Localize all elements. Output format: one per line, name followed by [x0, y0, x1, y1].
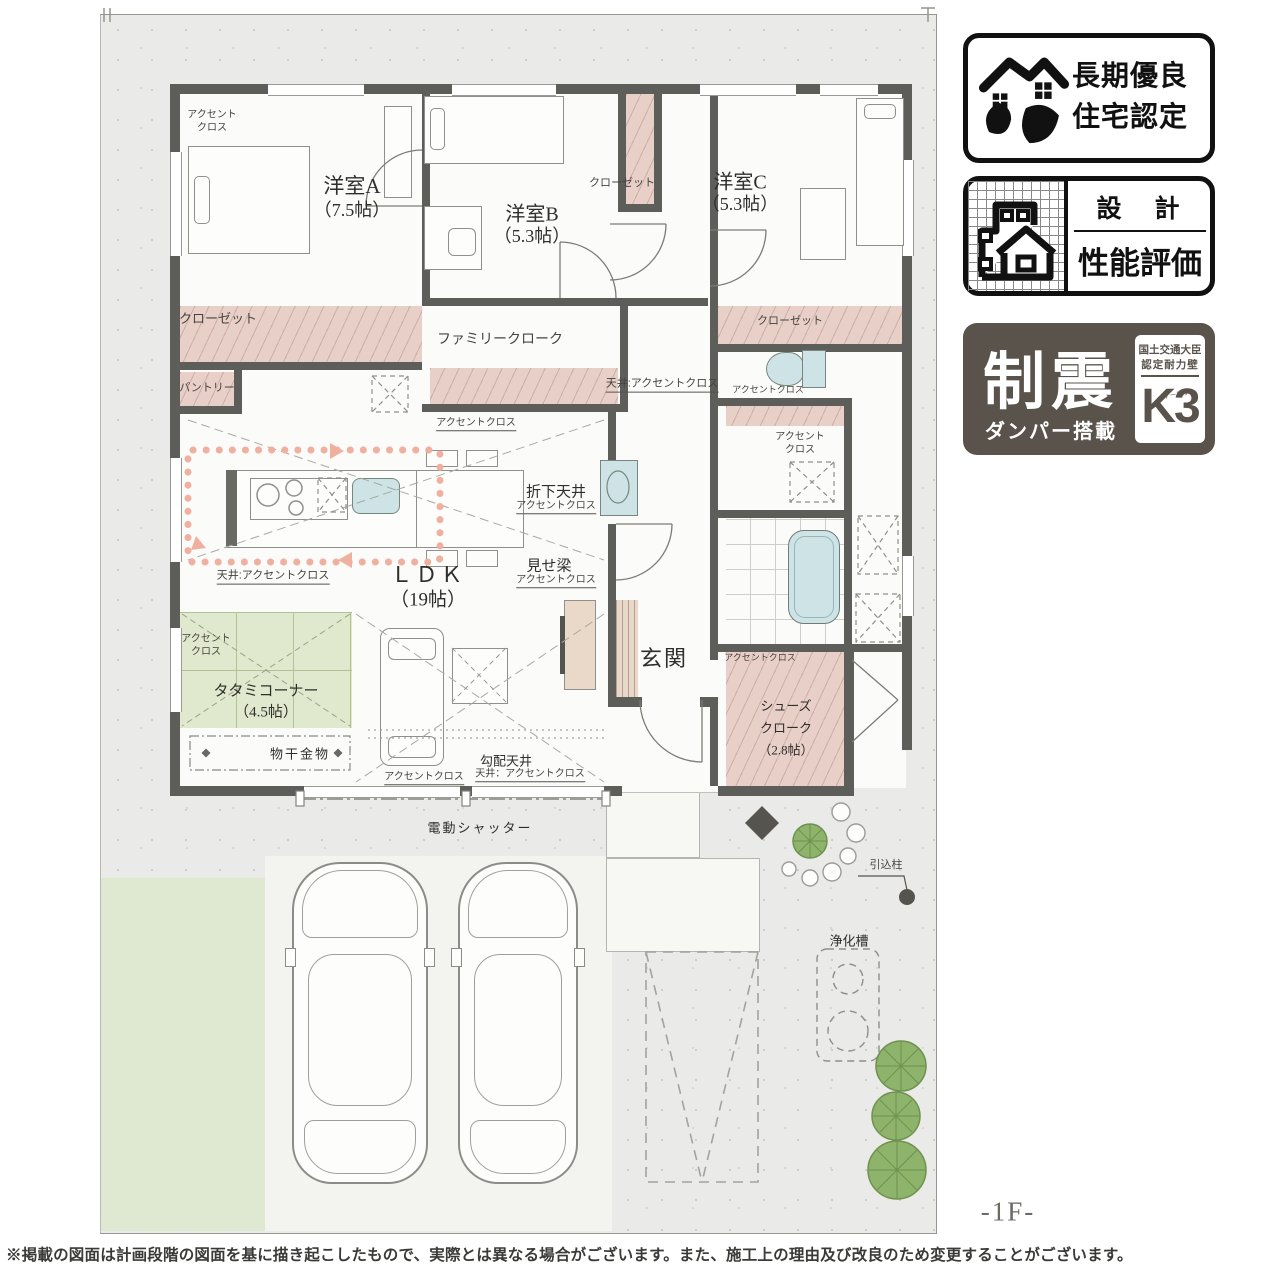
pillow-a [194, 176, 210, 224]
window-a-top [268, 84, 364, 96]
kitchen-end-panel [226, 470, 237, 546]
car-rear [304, 1120, 416, 1174]
note-shutter: 電動シャッター [427, 818, 532, 837]
footer-disclaimer: ※掲載の図面は計画段階の図面を基に描き起こしたもので、実際とは異なる場合がござい… [6, 1243, 1276, 1265]
dining-table [416, 470, 524, 548]
room-label-tatami: タタミコーナー [213, 680, 318, 701]
tv [560, 616, 565, 674]
wall-shoes-bottom [718, 786, 854, 796]
badge-damper-sub: ダンパー搭載 [971, 415, 1131, 444]
label-family-cloak: ファミリークローク [437, 330, 563, 348]
pillow-c [864, 104, 896, 119]
window-bath-right [902, 556, 914, 616]
approach-tile-2 [606, 858, 760, 952]
badge-design-evaluation: 設 計 性能評価 [963, 176, 1215, 296]
room-size-bedroom-b: （5.3帖） [494, 222, 571, 248]
label-pantry: パントリー [179, 382, 235, 396]
toilet-tank [802, 350, 826, 388]
car-mirror-left [451, 948, 462, 967]
bathtub-inner [794, 536, 834, 618]
car-cabin [474, 954, 562, 1106]
note-ceiling-accent: 天井:アクセントクロス [217, 570, 330, 585]
badge-k3-panel: 国土交通大臣 認定耐力壁 K3 ケースリー [1135, 335, 1205, 443]
car-rear [470, 1120, 566, 1174]
label-closet-bc: クローゼット [589, 177, 655, 191]
note-accent-cloth: アクセントクロス [384, 771, 464, 785]
room-size-shoes-cloak: （2.8帖） [758, 740, 813, 759]
approach-tile-1 [606, 792, 700, 858]
room-size-bedroom-c: （5.3帖） [702, 190, 779, 216]
car-hood [468, 870, 568, 938]
car-cabin [308, 954, 412, 1106]
car-mirror-left [285, 948, 296, 967]
label-closet-c: クローゼット [757, 315, 823, 329]
floorplan-flyer: { "rooms": { "bedroom_a": {"name": "洋室A"… [0, 0, 1280, 1280]
badge-k3-line2: 認定耐力壁 [1135, 357, 1205, 372]
desk-c [800, 188, 846, 260]
badge-k3-rule [1141, 375, 1199, 377]
room-label-shoes-cloak-1: シューズ [760, 696, 811, 715]
note-exposed-beam: 見せ梁 [526, 555, 571, 576]
wall-closet-bc-r [654, 94, 662, 212]
wall-closet-bc-b [618, 204, 662, 212]
note-accent-cloth: アクセントクロス [187, 110, 237, 135]
wall-hall-right-low [710, 700, 718, 786]
car-mirror-right [574, 948, 585, 967]
window-ldk-bottom-2 [472, 786, 604, 798]
note-laundry-hardware: 物干金物 [270, 744, 330, 763]
window-b-top [452, 84, 556, 96]
house-leaf-icon [978, 46, 1070, 150]
family-cloak-closet-strip [430, 368, 618, 404]
desk-a [384, 106, 412, 198]
car-1 [292, 862, 428, 1184]
wall-below-closet-a [170, 362, 422, 370]
sofa-cushion-1 [388, 638, 436, 660]
washroom-counter-strip [726, 406, 844, 426]
badge-design-divider [1074, 230, 1206, 232]
wall-wash-right [844, 398, 852, 652]
window-tatami-left [170, 628, 182, 712]
room-size-tatami: （4.5帖） [234, 701, 298, 722]
room-label-shoes-cloak-2: クローク [760, 718, 812, 737]
pillow-b [430, 108, 445, 150]
badge-damper-main: 制震 [977, 331, 1125, 421]
room-label-entrance: 玄関 [640, 641, 688, 673]
tv-board [564, 600, 596, 690]
car-2 [458, 862, 578, 1184]
window-ldk-bottom-1 [304, 786, 460, 798]
label-utility-pole: 引込柱 [870, 859, 903, 873]
badge-long-term-line2: 住宅認定 [1072, 101, 1188, 132]
wall-below-pantry [170, 406, 234, 414]
kitchen-stove [250, 478, 348, 520]
window-a-left [170, 152, 182, 256]
wall-bath-bottom [718, 644, 912, 652]
badge-design-subtitle: 性能評価 [1072, 238, 1208, 283]
note-accent-cloth: アクセントクロス [775, 432, 825, 457]
wall-toilet-bottom [718, 398, 852, 406]
note-accent-cloth: アクセントクロス [516, 500, 596, 514]
chair-b [448, 228, 476, 256]
entrance-floor-strip [616, 600, 638, 697]
floor-label: -1F- [981, 1197, 1036, 1228]
note-accent-cloth: アクセントクロス [181, 634, 231, 659]
wall-closet-bc-l [618, 94, 626, 212]
bed-b [424, 96, 564, 164]
dining-chair-1 [426, 450, 458, 467]
note-accent-cloth: アクセントクロス [732, 384, 804, 395]
wall-family-cloak-r [620, 306, 628, 412]
badge-k3-line1: 国土交通大臣 [1135, 342, 1205, 357]
window-c2-top [820, 84, 878, 96]
note-dropped-ceiling: 折下天井 [526, 481, 586, 502]
kitchen-sink [352, 478, 400, 514]
dining-chair-2 [466, 450, 498, 467]
sofa-cushion-2 [388, 736, 436, 758]
label-septic-tank: 浄化槽 [829, 931, 868, 950]
badge-seismic-damper: 制震 ダンパー搭載 国土交通大臣 認定耐力壁 K3 ケースリー [963, 323, 1215, 455]
wall-shoes-right [844, 652, 854, 796]
room-size-bedroom-a: （7.5帖） [314, 196, 391, 222]
window-kitchen-left [170, 458, 182, 562]
lawn [101, 878, 265, 1231]
wall-ldk-hall-low [608, 524, 616, 697]
car-hood [302, 870, 418, 938]
note-ceiling-accent: 天井：アクセントクロス [475, 768, 585, 782]
wall-ldk-hall-up [608, 412, 616, 466]
badge-design-title: 設 計 [1072, 189, 1208, 225]
bed-c [856, 98, 904, 246]
wall-entrance-l [608, 697, 642, 707]
wall-wash-bottom [718, 510, 852, 518]
note-sloped-ceiling: 勾配天井 [480, 751, 532, 770]
car-mirror-right [424, 948, 435, 967]
room-size-ldk: （19帖） [390, 585, 466, 612]
badge-long-term-housing: 長期優良 住宅認定 [963, 33, 1215, 163]
wall-family-cloak-b [422, 404, 628, 412]
note-accent-cloth: アクセントクロス [724, 652, 796, 663]
badge-long-term-line1: 長期優良 [1072, 60, 1188, 91]
coffee-table [452, 648, 508, 704]
note-accent-cloth: アクセントクロス [436, 417, 516, 431]
dining-chair-4 [466, 550, 498, 567]
toilet-bowl [766, 352, 804, 386]
grid-house-icon [968, 181, 1068, 291]
note-ceiling-accent: 天井:アクセントクロス [606, 378, 719, 393]
wall-below-b [422, 298, 708, 306]
note-accent-cloth: アクセントクロス [516, 574, 596, 588]
label-closet-a: クローゼット [179, 311, 257, 327]
hall-vanity [600, 460, 638, 516]
window-c-top [700, 84, 796, 96]
